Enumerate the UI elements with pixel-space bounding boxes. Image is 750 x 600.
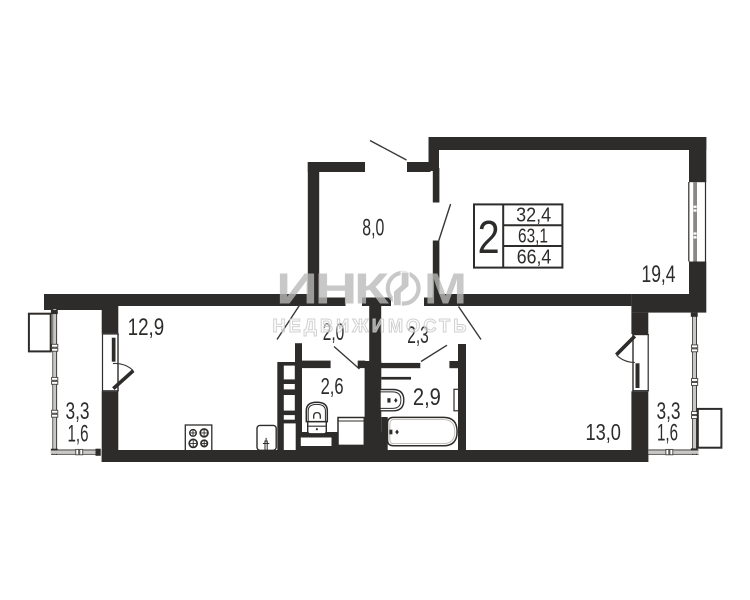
- svg-text:2,6: 2,6: [321, 373, 344, 399]
- svg-text:К: К: [354, 266, 390, 314]
- svg-text:М: М: [424, 266, 467, 314]
- svg-text:12,9: 12,9: [128, 314, 165, 341]
- svg-text:63,1: 63,1: [518, 225, 548, 247]
- svg-text:1,6: 1,6: [657, 420, 678, 447]
- svg-text:1,6: 1,6: [68, 421, 89, 448]
- svg-text:32,4: 32,4: [516, 205, 551, 227]
- svg-text:19,4: 19,4: [642, 261, 676, 288]
- svg-text:13,0: 13,0: [585, 419, 621, 445]
- svg-text:Н: Н: [315, 266, 358, 314]
- svg-text:И: И: [276, 266, 318, 314]
- svg-text:2,9: 2,9: [413, 384, 441, 411]
- svg-text:66,4: 66,4: [517, 247, 552, 269]
- svg-text:2: 2: [478, 211, 500, 263]
- svg-text:НЕДВИЖИМОСТЬ: НЕДВИЖИМОСТЬ: [273, 315, 470, 336]
- svg-text:8,0: 8,0: [362, 215, 384, 242]
